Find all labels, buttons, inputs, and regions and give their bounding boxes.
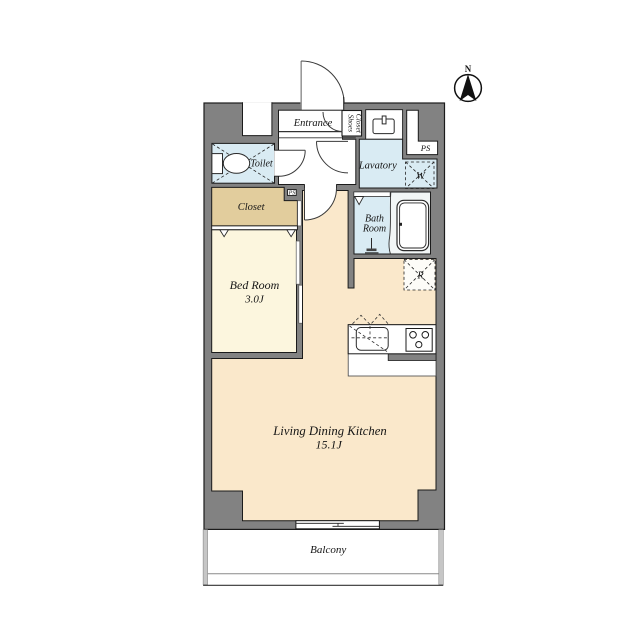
svg-text:Toilet: Toilet — [250, 159, 273, 170]
svg-text:Balcony: Balcony — [310, 544, 346, 556]
svg-text:W: W — [416, 171, 426, 182]
svg-text:PS: PS — [288, 191, 296, 197]
svg-text:Closet: Closet — [238, 202, 266, 213]
svg-text:Room: Room — [362, 224, 386, 235]
svg-text:3.0J: 3.0J — [244, 293, 265, 305]
svg-text:Living Dining Kitchen: Living Dining Kitchen — [272, 424, 386, 438]
svg-text:15.1J: 15.1J — [316, 437, 343, 451]
svg-text:Lavatory: Lavatory — [358, 161, 397, 172]
svg-text:Shoes: Shoes — [346, 115, 355, 133]
svg-text:Bed Room: Bed Room — [230, 278, 280, 292]
svg-text:N: N — [465, 64, 472, 74]
svg-text:R: R — [416, 271, 423, 282]
svg-text:Closet: Closet — [354, 114, 363, 134]
svg-text:PS: PS — [420, 143, 431, 153]
